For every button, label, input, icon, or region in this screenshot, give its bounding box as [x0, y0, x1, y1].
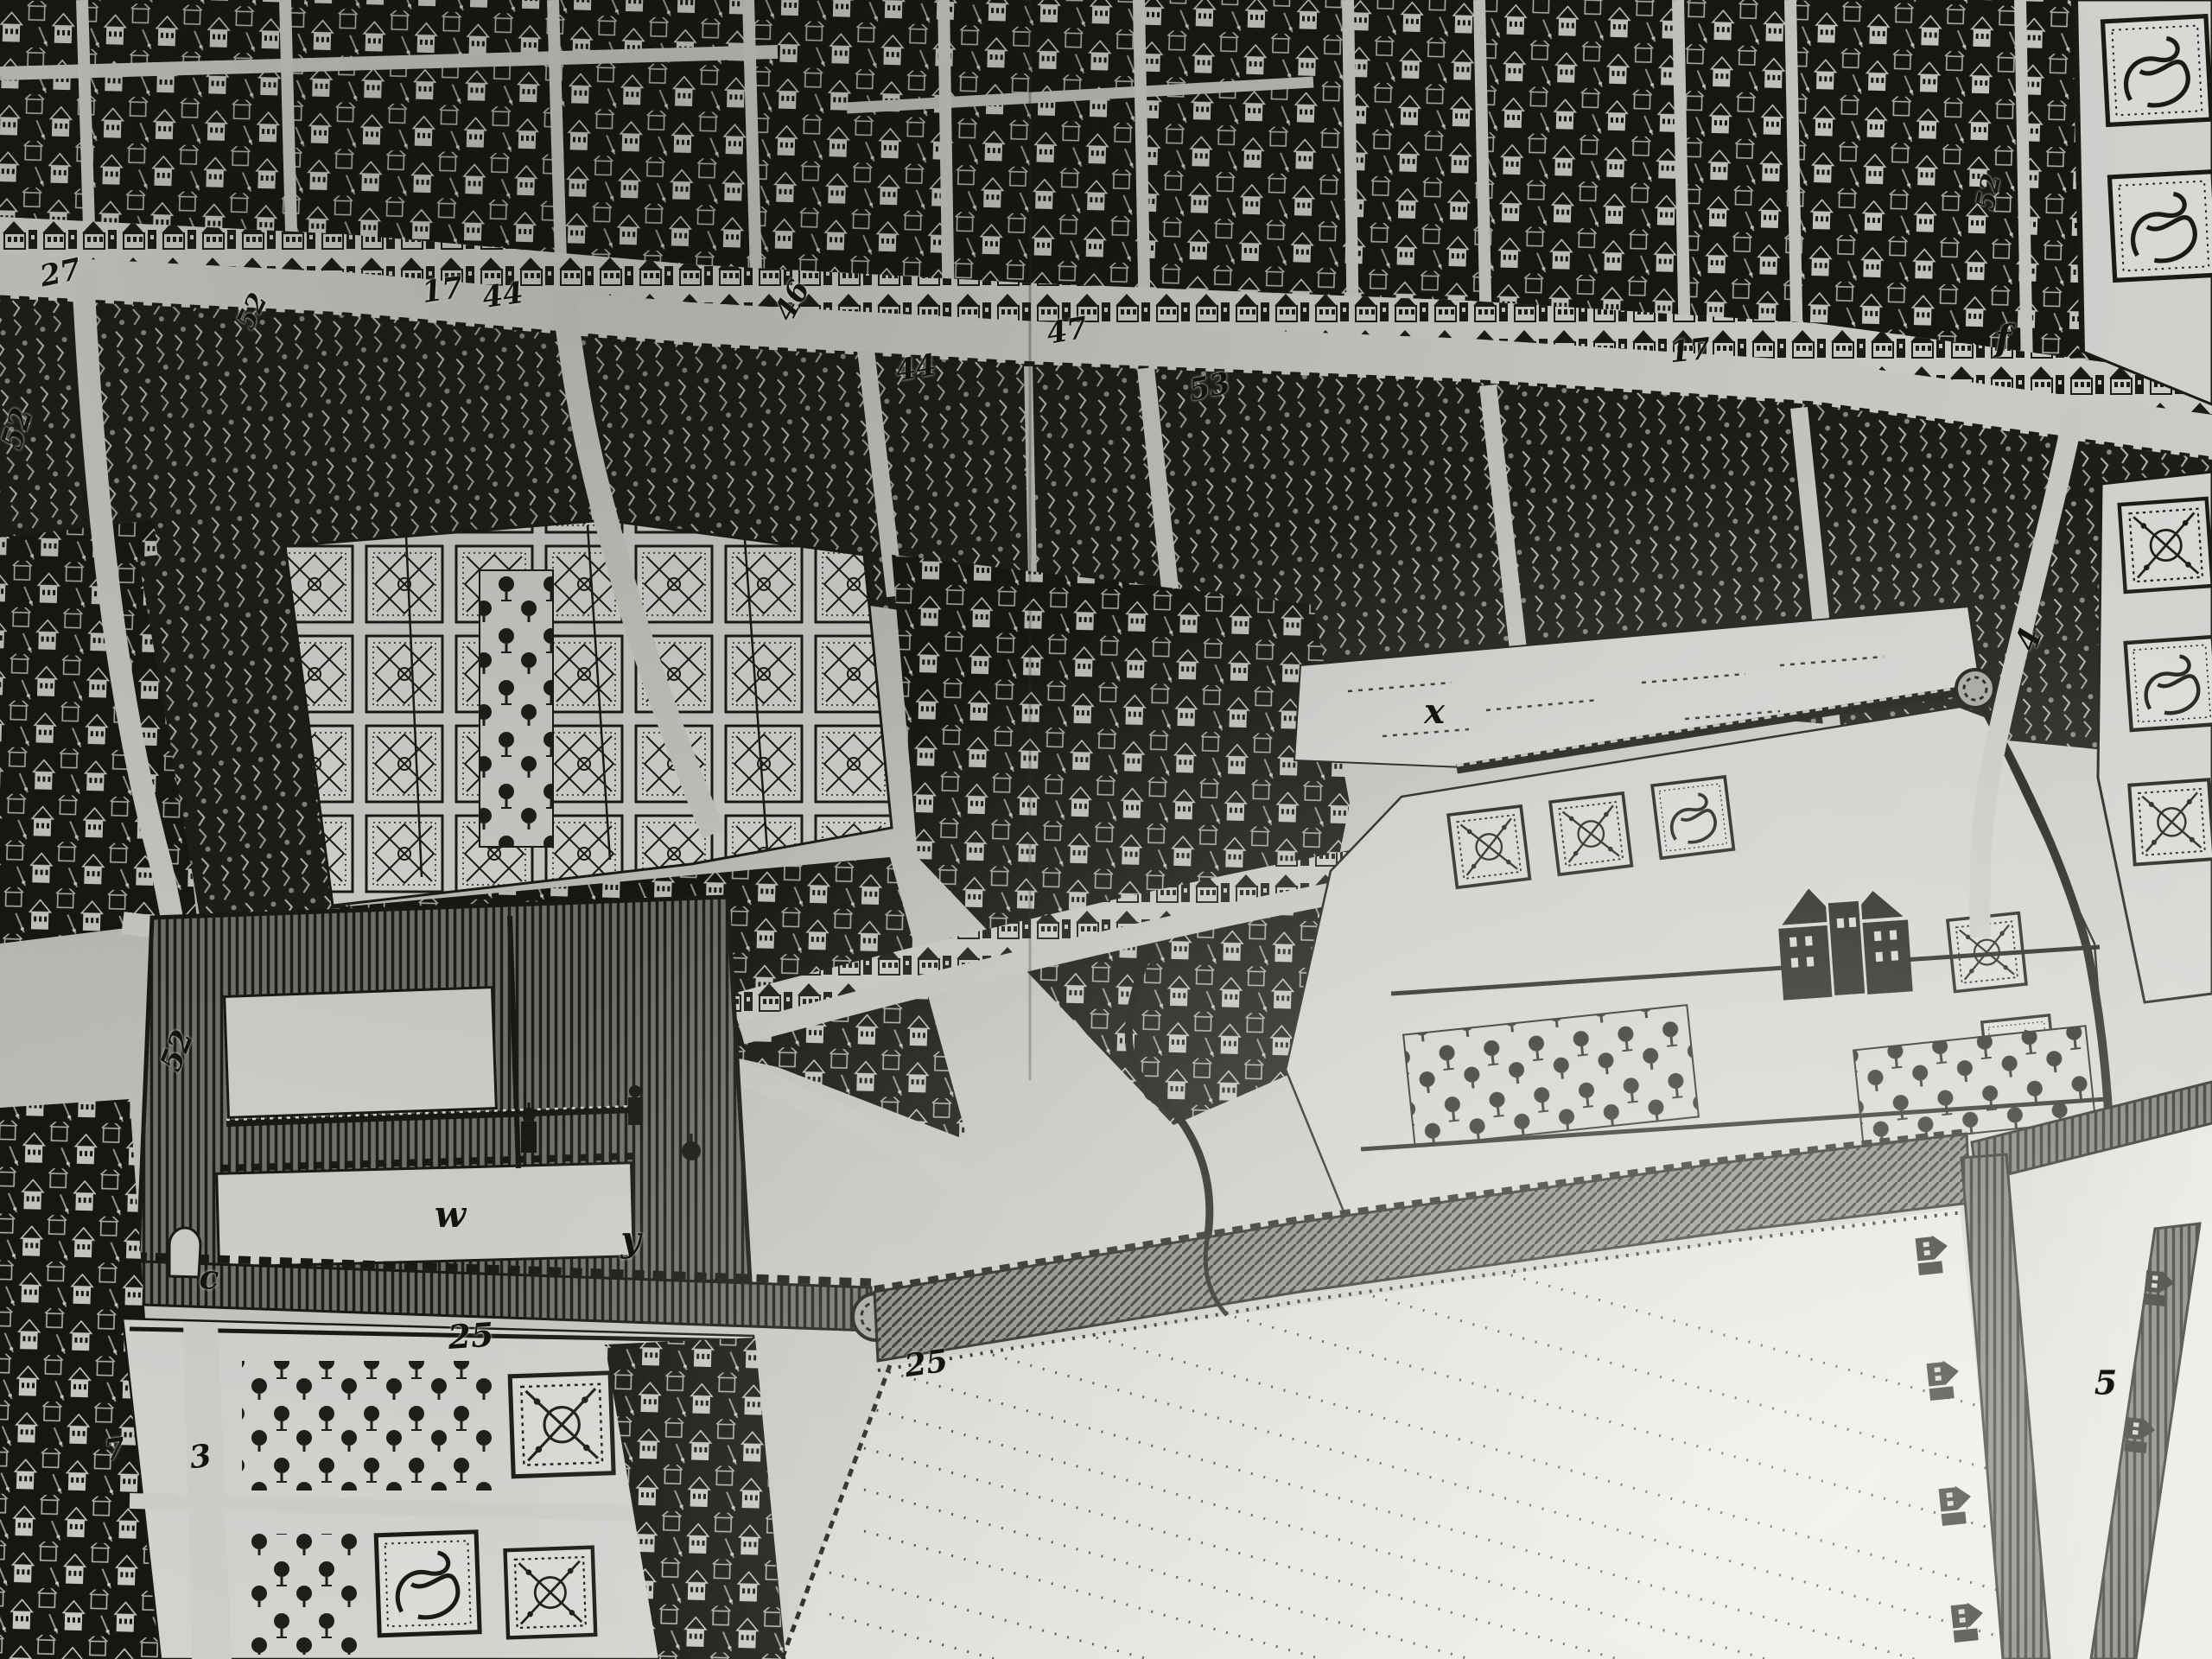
map-key-label: 52	[154, 1026, 201, 1077]
map-key-label: 52	[231, 289, 274, 334]
map-key-label: 52	[1971, 171, 2008, 213]
map-key-label: 47	[1044, 310, 1090, 352]
map-key-labels-layer: 2717444644475317f525252524xwyc2525375	[0, 0, 2212, 1659]
map-key-label: 27	[37, 252, 85, 295]
map-key-label: w	[435, 1193, 466, 1236]
map-key-label: 25	[447, 1314, 495, 1357]
map-key-label: 5	[2094, 1363, 2117, 1402]
map-key-label: 7	[102, 1432, 127, 1469]
map-key-label: c	[199, 1257, 219, 1296]
map-key-label: 25	[902, 1343, 950, 1385]
map-key-label: f	[1995, 317, 2011, 359]
map-key-label: 46	[767, 275, 817, 327]
map-key-label: 17	[1668, 332, 1712, 371]
engraved-city-map: 2717444644475317f525252524xwyc2525375	[0, 0, 2212, 1659]
map-key-label: 4	[2008, 623, 2050, 656]
map-key-label: 44	[893, 347, 939, 389]
map-key-label: 53	[1186, 366, 1234, 409]
map-key-label: 44	[480, 276, 525, 315]
map-key-label: 17	[420, 270, 465, 310]
map-key-label: x	[1424, 691, 1445, 732]
map-key-label: 3	[188, 1437, 214, 1476]
map-key-label: 52	[0, 404, 40, 453]
map-key-label: y	[620, 1219, 640, 1260]
